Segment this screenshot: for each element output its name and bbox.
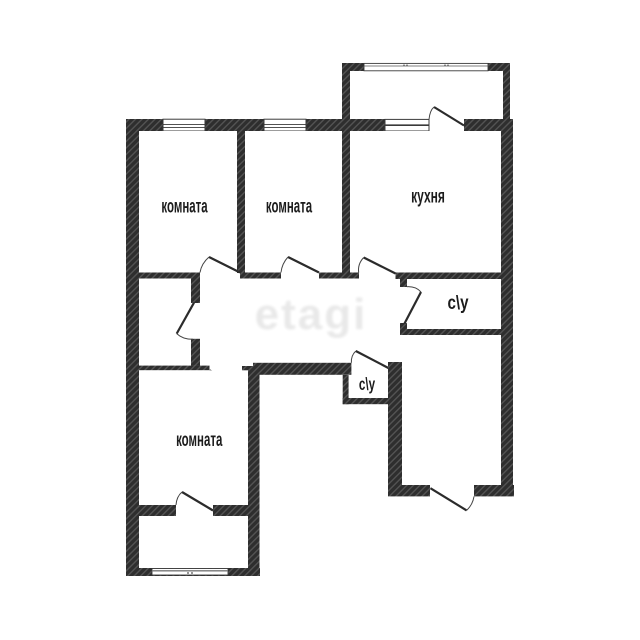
svg-text:комната: комната — [266, 197, 312, 218]
svg-text:с\у: с\у — [359, 376, 376, 395]
svg-text:комната: комната — [161, 197, 207, 218]
svg-text:с\у: с\у — [448, 291, 469, 313]
svg-text:комната: комната — [176, 430, 222, 451]
svg-text:etagi: etagi — [255, 290, 368, 339]
svg-text:кухня: кухня — [411, 187, 445, 207]
